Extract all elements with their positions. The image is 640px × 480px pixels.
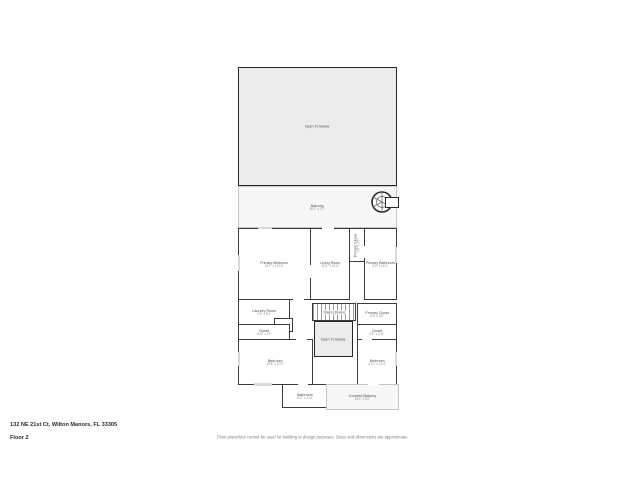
window <box>395 352 397 366</box>
door-opening <box>363 246 366 258</box>
room-label-primary-closet: Primary Closet 8'8" x 4'8" <box>358 304 396 324</box>
floor-plan: Open To Below Balcony 36'1" x 7'2" <box>238 67 398 411</box>
room-label-bedroom-left: Bedroom 16'8" x 10'2" <box>239 340 312 384</box>
window <box>254 383 272 386</box>
room-primary-bedroom: Primary Bedroom 16'4" x 13'10" <box>238 228 311 300</box>
room-label-primary-bathroom: Primary Bathroom 8'5" x 16'4" <box>365 229 396 299</box>
room-label-living-room: Living Room 8'11" x 16'4" <box>311 229 349 299</box>
room-closet-left: Closet 11'6" x 3'2" <box>238 324 290 340</box>
room-label-primary-closet-upper: Primary Closet 7'8" x 3'5" <box>350 229 364 261</box>
floorplan-page: Open To Below Balcony 36'1" x 7'2" <box>0 0 640 480</box>
stairs-label: Stairs (Down) <box>313 304 355 320</box>
property-address: 132 NE 21st Ct, Wilton Manors, FL 33305 <box>10 421 117 427</box>
door-opening <box>296 338 307 341</box>
room-open-to-below-center: Open To Below <box>314 321 353 357</box>
door-opening <box>293 298 304 301</box>
room-label-bedroom-right: Bedroom 8'10" x 13'4" <box>358 340 396 384</box>
disclaimer-text: Floor plans/tour cannot be used for buil… <box>217 435 409 440</box>
room-label-closet-left: Closet 11'6" x 3'2" <box>239 325 289 339</box>
stairs-down: Stairs (Down) <box>312 303 356 321</box>
room-living-room: Living Room 8'11" x 16'4" <box>310 228 350 300</box>
room-covered-balcony: Covered Balcony 16'4" x 5'2" <box>326 384 399 410</box>
room-label-open-to-below-top: Open To Below <box>239 68 396 185</box>
window <box>395 247 397 263</box>
window <box>238 255 240 271</box>
room-bedroom-left: Bedroom 16'8" x 10'2" <box>238 339 313 385</box>
room-primary-closet: Primary Closet 8'8" x 4'8" <box>357 303 397 325</box>
door-opening <box>298 383 308 386</box>
window <box>258 227 272 229</box>
room-label-bathroom: Bathroom 10'2" x 4'11" <box>283 385 326 407</box>
room-label-closet-right: Closet 8'8" x 2'11" <box>358 325 396 339</box>
room-primary-bathroom: Primary Bathroom 8'5" x 16'4" <box>364 228 397 300</box>
room-bedroom-right: Bedroom 8'10" x 13'4" <box>357 339 397 385</box>
room-open-to-below-top: Open To Below <box>238 67 397 186</box>
balcony-landing-notch <box>385 197 399 208</box>
room-label-primary-bedroom: Primary Bedroom 16'4" x 13'10" <box>239 229 310 299</box>
room-label-covered-balcony: Covered Balcony 16'4" x 5'2" <box>327 385 398 409</box>
window <box>238 352 240 366</box>
door-opening <box>362 338 372 341</box>
floor-label: Floor 2 <box>10 434 29 440</box>
room-label-open-to-below-center: Open To Below <box>315 322 352 356</box>
door-opening <box>368 383 379 386</box>
room-bathroom: Bathroom 10'2" x 4'11" <box>282 384 327 408</box>
door-opening <box>322 227 334 230</box>
door-opening <box>309 265 312 278</box>
